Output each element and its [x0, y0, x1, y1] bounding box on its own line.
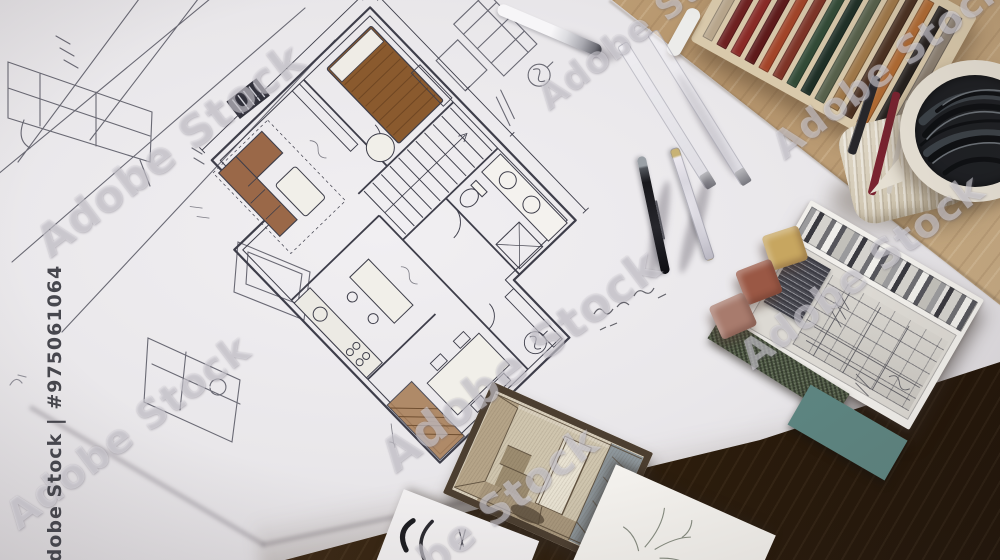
- handwriting-notes: [0, 0, 1000, 560]
- desk-photo: Adobe Stock Adobe Stock Adobe Stock Adob…: [0, 0, 1000, 560]
